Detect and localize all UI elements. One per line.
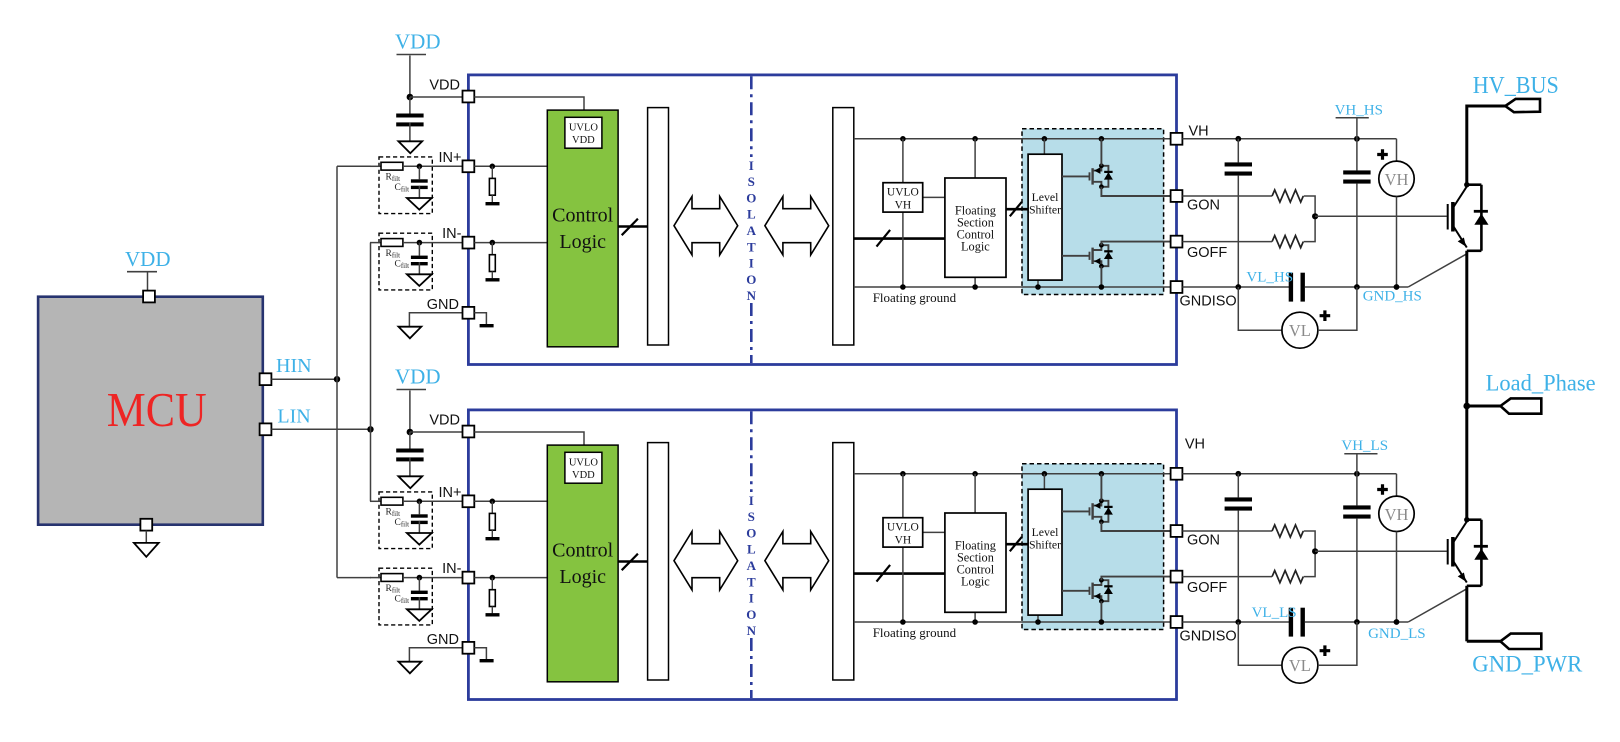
- svg-text:HIN: HIN: [276, 355, 312, 377]
- svg-text:VL_LS: VL_LS: [1252, 605, 1297, 621]
- svg-text:VL_HS: VL_HS: [1246, 270, 1293, 286]
- svg-text:GND_PWR: GND_PWR: [1472, 652, 1583, 677]
- svg-text:Load_Phase: Load_Phase: [1486, 371, 1596, 396]
- svg-text:VH_LS: VH_LS: [1341, 438, 1388, 454]
- svg-text:GND_LS: GND_LS: [1368, 626, 1426, 642]
- svg-text:VH: VH: [1185, 437, 1205, 453]
- svg-text:GND_HS: GND_HS: [1363, 289, 1422, 305]
- svg-text:VH: VH: [1189, 124, 1209, 140]
- svg-text:VH_HS: VH_HS: [1335, 103, 1383, 119]
- svg-text:LIN: LIN: [277, 406, 310, 428]
- svg-text:MCU: MCU: [107, 384, 207, 437]
- svg-text:HV_BUS: HV_BUS: [1473, 73, 1559, 99]
- svg-text:VDD: VDD: [125, 247, 171, 271]
